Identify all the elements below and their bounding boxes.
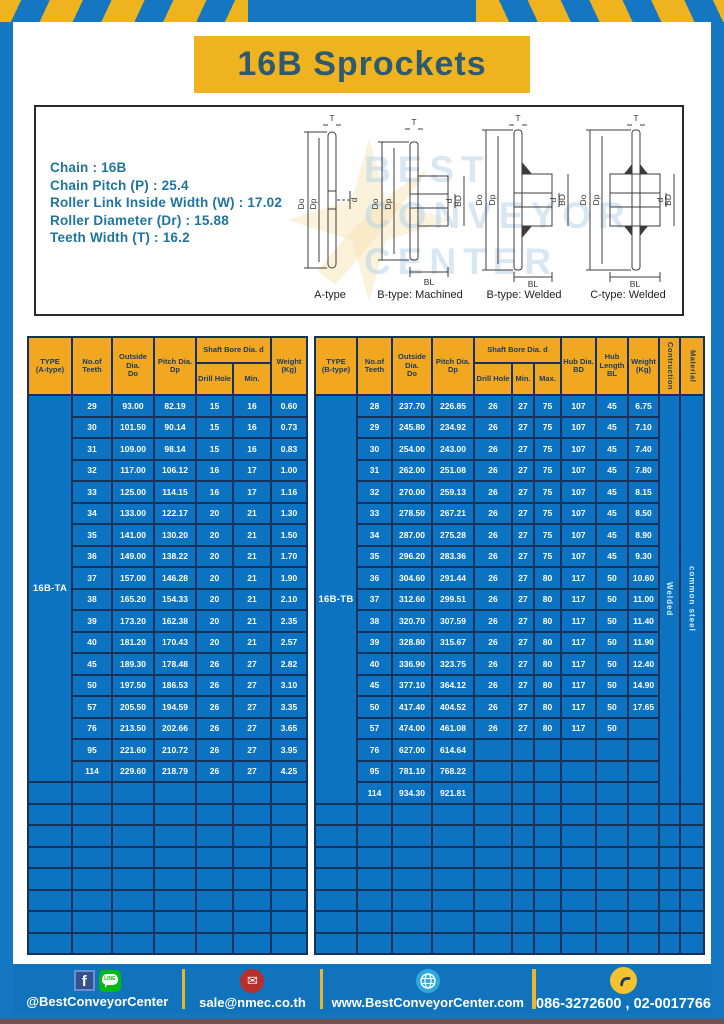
spec-diagram-panel: BEST CONVEYOR CENTER Chain : 16B Chain P…	[34, 105, 684, 316]
table-cell	[475, 934, 511, 954]
table-cell	[197, 783, 232, 803]
table-cell	[681, 869, 703, 889]
table-cell: 45	[597, 418, 627, 438]
table-cell	[513, 934, 533, 954]
table-cell: 50	[597, 697, 627, 717]
table-cell: 205.50	[113, 697, 153, 717]
table-cell: 75	[535, 396, 560, 416]
construction-merged-cell: Welded	[660, 396, 679, 803]
table-cell: 107	[562, 439, 595, 459]
table-cell	[562, 912, 595, 932]
table-cell: 3.95	[272, 740, 306, 760]
table-cell: 283.36	[433, 547, 473, 567]
table-cell: 27	[513, 525, 533, 545]
table-cell: 141.00	[113, 525, 153, 545]
svg-text:Do: Do	[474, 194, 484, 205]
table-cell	[660, 912, 679, 932]
table-cell	[316, 848, 356, 868]
table-cell	[358, 912, 391, 932]
table-cell: 50	[73, 676, 111, 696]
table-cell	[660, 891, 679, 911]
table-cell: 138.22	[155, 547, 195, 567]
email-label[interactable]: sale@nmec.co.th	[199, 995, 306, 1010]
table-cell	[29, 848, 71, 868]
table-cell	[535, 848, 560, 868]
table-cell: 259.13	[433, 482, 473, 502]
table-cell	[113, 805, 153, 825]
table-cell: 8.15	[629, 482, 658, 502]
table-cell: 117	[562, 654, 595, 674]
table-cell	[681, 826, 703, 846]
table-cell: 2.35	[272, 611, 306, 631]
svg-text:Dp: Dp	[308, 198, 318, 209]
diagram-c-type-welded: T Do Dp d BD	[578, 112, 678, 301]
diagram-a-type: T Do Dp d A-type	[294, 112, 366, 301]
material-merged-cell: common steel	[681, 396, 703, 803]
table-cell	[197, 826, 232, 846]
table-cell: 0.83	[272, 439, 306, 459]
table-cell: 27	[234, 654, 270, 674]
table-cell	[535, 783, 560, 803]
table-cell: 287.00	[393, 525, 431, 545]
table-cell: 474.00	[393, 719, 431, 739]
table-cell: 27	[234, 697, 270, 717]
table-cell	[513, 891, 533, 911]
table-cell	[155, 912, 195, 932]
table-cell	[535, 740, 560, 760]
table-cell	[629, 826, 658, 846]
table-cell: 45	[597, 439, 627, 459]
table-cell: 107	[562, 418, 595, 438]
table-cell: 39	[358, 633, 391, 653]
table-cell: 245.80	[393, 418, 431, 438]
table-cell: 27	[234, 676, 270, 696]
table-cell: 117.00	[113, 461, 153, 481]
table-cell	[358, 934, 391, 954]
table-cell: 38	[73, 590, 111, 610]
table-cell: 149.00	[113, 547, 153, 567]
table-cell: 20	[197, 633, 232, 653]
table-a-body: 16B-TA2993.0082.1915160.6030101.5090.141…	[29, 396, 306, 953]
table-cell: 33	[358, 504, 391, 524]
table-cell	[197, 805, 232, 825]
table-cell: 21	[234, 611, 270, 631]
table-cell	[513, 805, 533, 825]
table-cell	[433, 869, 473, 889]
table-cell	[660, 805, 679, 825]
header-hub-length: Hub Length BL	[597, 338, 627, 394]
table-cell	[535, 912, 560, 932]
header-pitch: Pitch Dia. Dp	[433, 338, 473, 394]
table-cell: 221.60	[113, 740, 153, 760]
table-cell	[113, 891, 153, 911]
table-cell: 34	[73, 504, 111, 524]
table-cell: 107	[562, 482, 595, 502]
table-cell: 107	[562, 525, 595, 545]
table-cell	[475, 740, 511, 760]
table-cell: 95	[73, 740, 111, 760]
table-cell	[197, 891, 232, 911]
table-cell	[358, 848, 391, 868]
table-cell	[393, 934, 431, 954]
table-cell: 75	[535, 461, 560, 481]
table-cell: 229.60	[113, 762, 153, 782]
table-cell	[272, 805, 306, 825]
page-title: 16B Sprockets	[237, 45, 486, 84]
table-cell: 2.82	[272, 654, 306, 674]
table-cell: 6.75	[629, 396, 658, 416]
table-cell: 45	[597, 482, 627, 502]
table-cell	[597, 891, 627, 911]
table-cell: 50	[597, 611, 627, 631]
table-cell: 26	[475, 418, 511, 438]
table-cell	[358, 891, 391, 911]
table-cell: 50	[597, 590, 627, 610]
website-label[interactable]: www.BestConveyorCenter.com	[332, 995, 524, 1010]
svg-text:T: T	[329, 113, 334, 123]
table-cell: 7.80	[629, 461, 658, 481]
table-cell: 125.00	[113, 482, 153, 502]
header-outside: Outside Dia. Do	[113, 338, 153, 394]
chain-specs: Chain : 16B Chain Pitch (P) : 25.4 Rolle…	[50, 159, 282, 247]
table-cell: 16	[234, 439, 270, 459]
table-cell: 32	[73, 461, 111, 481]
table-cell: 328.80	[393, 633, 431, 653]
footer-contact-bar: f LINE @BestConveyorCenter ✉ sale@nmec.c…	[13, 964, 711, 1014]
table-cell	[272, 934, 306, 954]
table-cell: 26	[475, 525, 511, 545]
header-min: Min.	[234, 364, 270, 394]
table-cell: 117	[562, 719, 595, 739]
sprocket-diagrams: T Do Dp d A-type T	[294, 112, 678, 301]
table-cell	[73, 934, 111, 954]
table-cell	[155, 826, 195, 846]
table-b-body: 16B-TB28237.70226.85262775107456.7529245…	[316, 396, 703, 953]
facebook-icon[interactable]: f	[74, 970, 95, 991]
table-cell: 133.00	[113, 504, 153, 524]
table-cell	[197, 912, 232, 932]
table-cell	[272, 912, 306, 932]
phone-label[interactable]: 086-3272600 , 02-0017766	[536, 996, 711, 1012]
website-section: www.BestConveyorCenter.com	[323, 964, 532, 1014]
table-cell	[535, 869, 560, 889]
table-cell: 107	[562, 504, 595, 524]
table-cell	[197, 848, 232, 868]
table-cell	[234, 826, 270, 846]
table-cell	[113, 869, 153, 889]
table-cell: 27	[234, 740, 270, 760]
table-cell: 27	[513, 504, 533, 524]
table-cell: 4.25	[272, 762, 306, 782]
table-cell	[29, 783, 71, 803]
table-cell	[513, 740, 533, 760]
table-cell: 82.19	[155, 396, 195, 416]
table-cell: 315.67	[433, 633, 473, 653]
table-cell: 21	[234, 525, 270, 545]
table-cell	[597, 848, 627, 868]
table-cell: 75	[535, 504, 560, 524]
table-cell: 1.00	[272, 461, 306, 481]
table-cell: 146.28	[155, 568, 195, 588]
header-drill: Drill Hole	[197, 364, 232, 394]
table-cell: 26	[475, 439, 511, 459]
table-cell: 213.50	[113, 719, 153, 739]
table-cell: 117	[562, 568, 595, 588]
social-section: f LINE @BestConveyorCenter	[13, 964, 182, 1014]
table-cell: 80	[535, 568, 560, 588]
table-cell: 1.16	[272, 482, 306, 502]
table-cell: 34	[358, 525, 391, 545]
table-cell	[660, 826, 679, 846]
table-cell: 80	[535, 676, 560, 696]
table-cell	[681, 805, 703, 825]
table-cell: 80	[535, 633, 560, 653]
table-cell: 40	[73, 633, 111, 653]
table-cell: 35	[358, 547, 391, 567]
table-cell: 50	[597, 568, 627, 588]
svg-text:T: T	[633, 113, 638, 123]
table-cell	[535, 934, 560, 954]
table-cell: 37	[73, 568, 111, 588]
table-cell: 1.30	[272, 504, 306, 524]
table-cell	[562, 826, 595, 846]
table-cell	[562, 934, 595, 954]
table-cell: 26	[475, 547, 511, 567]
table-cell	[629, 762, 658, 782]
table-cell	[73, 848, 111, 868]
table-cell	[316, 891, 356, 911]
table-cell	[660, 869, 679, 889]
table-cell	[597, 762, 627, 782]
table-cell: 27	[513, 568, 533, 588]
table-cell: 39	[73, 611, 111, 631]
table-cell: 11.40	[629, 611, 658, 631]
table-cell: 27	[513, 719, 533, 739]
table-cell: 75	[535, 547, 560, 567]
table-cell: 107	[562, 396, 595, 416]
diagram-caption: C-type: Welded	[590, 289, 666, 301]
table-cell	[358, 805, 391, 825]
table-cell: 117	[562, 611, 595, 631]
header-shaft-bore: Shaft Bore Dia. d	[475, 338, 560, 362]
table-a-type: TYPE (A-type) No.of Teeth Outside Dia. D…	[27, 336, 308, 955]
table-cell: 768.22	[433, 762, 473, 782]
table-cell: 2.57	[272, 633, 306, 653]
table-cell: 26	[475, 568, 511, 588]
table-cell: 7.40	[629, 439, 658, 459]
table-cell: 15	[197, 396, 232, 416]
table-cell	[393, 805, 431, 825]
header-drill: Drill Hole	[475, 364, 511, 394]
table-cell: 11.90	[629, 633, 658, 653]
header-weight: Weight (Kg)	[272, 338, 306, 394]
table-cell: 8.50	[629, 504, 658, 524]
table-cell	[629, 891, 658, 911]
header-hub-dia: Hub Dia. BD	[562, 338, 595, 394]
table-cell	[197, 934, 232, 954]
table-cell	[433, 805, 473, 825]
table-cell: 162.38	[155, 611, 195, 631]
table-cell	[597, 783, 627, 803]
table-b-type: TYPE (B-type) No.of Teeth Outside Dia. D…	[314, 336, 705, 955]
table-cell	[433, 891, 473, 911]
table-cell: 20	[197, 547, 232, 567]
table-cell: 194.59	[155, 697, 195, 717]
table-cell: 3.35	[272, 697, 306, 717]
table-cell: 37	[358, 590, 391, 610]
spec-tables: TYPE (A-type) No.of Teeth Outside Dia. D…	[27, 336, 705, 955]
mail-icon[interactable]: ✉	[240, 969, 264, 993]
table-cell: 45	[597, 461, 627, 481]
diagram-caption: B-type: Welded	[486, 289, 561, 301]
table-cell: 45	[73, 654, 111, 674]
table-cell: 12.40	[629, 654, 658, 674]
table-cell	[234, 783, 270, 803]
table-cell	[316, 934, 356, 954]
table-cell: 114.15	[155, 482, 195, 502]
table-cell	[358, 869, 391, 889]
table-cell: 90.14	[155, 418, 195, 438]
table-cell: 404.52	[433, 697, 473, 717]
table-cell: 26	[475, 633, 511, 653]
table-cell: 57	[73, 697, 111, 717]
table-cell: 20	[197, 568, 232, 588]
table-cell: 7.10	[629, 418, 658, 438]
table-cell	[316, 805, 356, 825]
table-cell: 122.17	[155, 504, 195, 524]
table-cell	[272, 869, 306, 889]
globe-icon[interactable]	[416, 969, 440, 993]
table-cell	[475, 805, 511, 825]
line-icon[interactable]: LINE	[99, 970, 121, 992]
table-cell: 114	[358, 783, 391, 803]
table-cell: 27	[513, 439, 533, 459]
table-cell: 8.90	[629, 525, 658, 545]
table-cell	[475, 762, 511, 782]
table-cell	[316, 912, 356, 932]
table-cell: 80	[535, 719, 560, 739]
diagram-b-type-welded: T Do Dp d BD	[474, 112, 574, 301]
phone-icon[interactable]	[610, 967, 637, 994]
catalog-page: 16B Sprockets BEST CONVEYOR CENTER Chain…	[0, 0, 724, 1024]
svg-text:Do: Do	[296, 198, 306, 209]
header-type: TYPE (B-type)	[316, 338, 356, 394]
table-cell: 80	[535, 590, 560, 610]
table-cell	[597, 869, 627, 889]
table-cell: 312.60	[393, 590, 431, 610]
table-cell: 173.20	[113, 611, 153, 631]
table-cell: 106.12	[155, 461, 195, 481]
svg-text:BL: BL	[528, 279, 539, 288]
table-cell	[113, 912, 153, 932]
table-cell: 9.30	[629, 547, 658, 567]
table-cell: 30	[73, 418, 111, 438]
table-cell: 117	[562, 633, 595, 653]
table-cell: 50	[358, 697, 391, 717]
table-cell: 21	[234, 568, 270, 588]
table-cell: 28	[358, 396, 391, 416]
diagram-caption: B-type: Machined	[377, 289, 463, 301]
table-cell: 296.20	[393, 547, 431, 567]
table-cell: 27	[234, 719, 270, 739]
table-cell: 27	[513, 633, 533, 653]
table-cell: 20	[197, 504, 232, 524]
table-cell	[272, 848, 306, 868]
table-cell	[597, 826, 627, 846]
table-cell: 27	[513, 676, 533, 696]
social-handle[interactable]: @BestConveyorCenter	[26, 994, 168, 1009]
phone-section: 086-3272600 , 02-0017766	[536, 964, 711, 1014]
table-cell	[433, 826, 473, 846]
header-weight: Weight (Kg)	[629, 338, 658, 394]
page-title-banner: 16B Sprockets	[194, 36, 530, 93]
table-cell	[535, 891, 560, 911]
table-cell: 21	[234, 590, 270, 610]
table-cell: 170.43	[155, 633, 195, 653]
table-cell: 26	[475, 504, 511, 524]
table-cell	[475, 783, 511, 803]
table-cell	[73, 869, 111, 889]
spec-line: Teeth Width (T) : 16.2	[50, 229, 282, 247]
svg-text:BD: BD	[663, 194, 673, 206]
table-cell: 50	[597, 676, 627, 696]
table-cell: 20	[197, 525, 232, 545]
table-cell: 26	[475, 396, 511, 416]
table-cell: 117	[562, 590, 595, 610]
table-cell: 80	[535, 697, 560, 717]
table-cell	[234, 934, 270, 954]
table-cell	[316, 869, 356, 889]
table-cell	[681, 934, 703, 954]
table-b-header: TYPE (B-type) No.of Teeth Outside Dia. D…	[316, 338, 703, 394]
table-cell	[316, 826, 356, 846]
table-cell	[29, 912, 71, 932]
table-cell: 26	[475, 676, 511, 696]
table-cell	[513, 826, 533, 846]
table-cell: 109.00	[113, 439, 153, 459]
table-cell: 27	[513, 611, 533, 631]
svg-text:T: T	[515, 113, 520, 123]
table-cell: 15	[197, 439, 232, 459]
table-cell: 76	[358, 740, 391, 760]
table-cell: 33	[73, 482, 111, 502]
table-cell: 27	[513, 482, 533, 502]
table-cell	[562, 762, 595, 782]
table-cell: 45	[597, 396, 627, 416]
table-cell: 117	[562, 676, 595, 696]
table-cell: 299.51	[433, 590, 473, 610]
table-cell: 781.10	[393, 762, 431, 782]
table-cell: 27	[513, 654, 533, 674]
svg-text:BL: BL	[424, 277, 435, 287]
table-cell: 45	[597, 547, 627, 567]
table-cell	[73, 783, 111, 803]
table-cell	[433, 912, 473, 932]
table-cell: 3.10	[272, 676, 306, 696]
table-cell	[629, 783, 658, 803]
table-cell	[113, 848, 153, 868]
table-cell: 267.21	[433, 504, 473, 524]
table-cell	[562, 891, 595, 911]
table-cell	[629, 740, 658, 760]
table-cell: 10.60	[629, 568, 658, 588]
table-cell: 29	[73, 396, 111, 416]
table-cell	[629, 848, 658, 868]
table-cell	[562, 805, 595, 825]
table-cell: 75	[535, 525, 560, 545]
table-cell: 45	[358, 676, 391, 696]
table-cell: 26	[475, 697, 511, 717]
